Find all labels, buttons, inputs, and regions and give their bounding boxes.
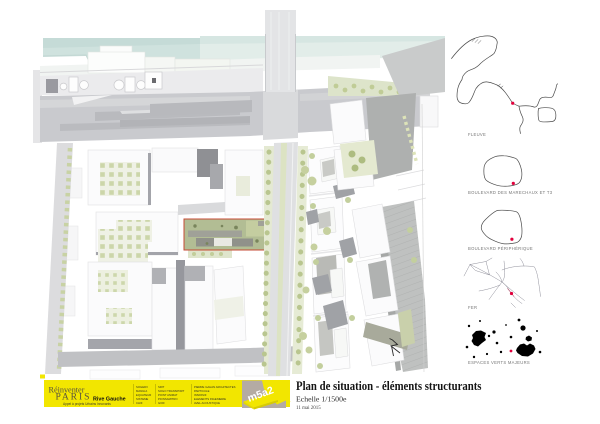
svg-text:ESPACES VERTS MAJEURS: ESPACES VERTS MAJEURS (468, 360, 530, 365)
svg-text:GIOF: GIOF (158, 401, 165, 405)
svg-text:BOULEVARD PÉRIPHÉRIQUE: BOULEVARD PÉRIPHÉRIQUE (468, 246, 533, 251)
svg-text:CHIF: CHIF (136, 401, 143, 405)
svg-text:Plan de situation - éléments s: Plan de situation - éléments structurant… (296, 379, 482, 393)
svg-text:FER: FER (468, 305, 477, 310)
svg-text:Appel à projets Urbains Innova: Appel à projets Urbains Innovants (63, 402, 111, 406)
svg-text:AVEL ACOUSTIQUE: AVEL ACOUSTIQUE (194, 401, 220, 405)
svg-text:11 mai 2015: 11 mai 2015 (296, 406, 321, 411)
svg-text:FLEUVE: FLEUVE (468, 132, 486, 137)
svg-text:BOULEVARD DES MARECHAUX ET T3: BOULEVARD DES MARECHAUX ET T3 (468, 190, 553, 195)
svg-text:Echelle 1/1500e: Echelle 1/1500e (296, 395, 347, 404)
svg-text:PARIS: PARIS (56, 392, 92, 403)
